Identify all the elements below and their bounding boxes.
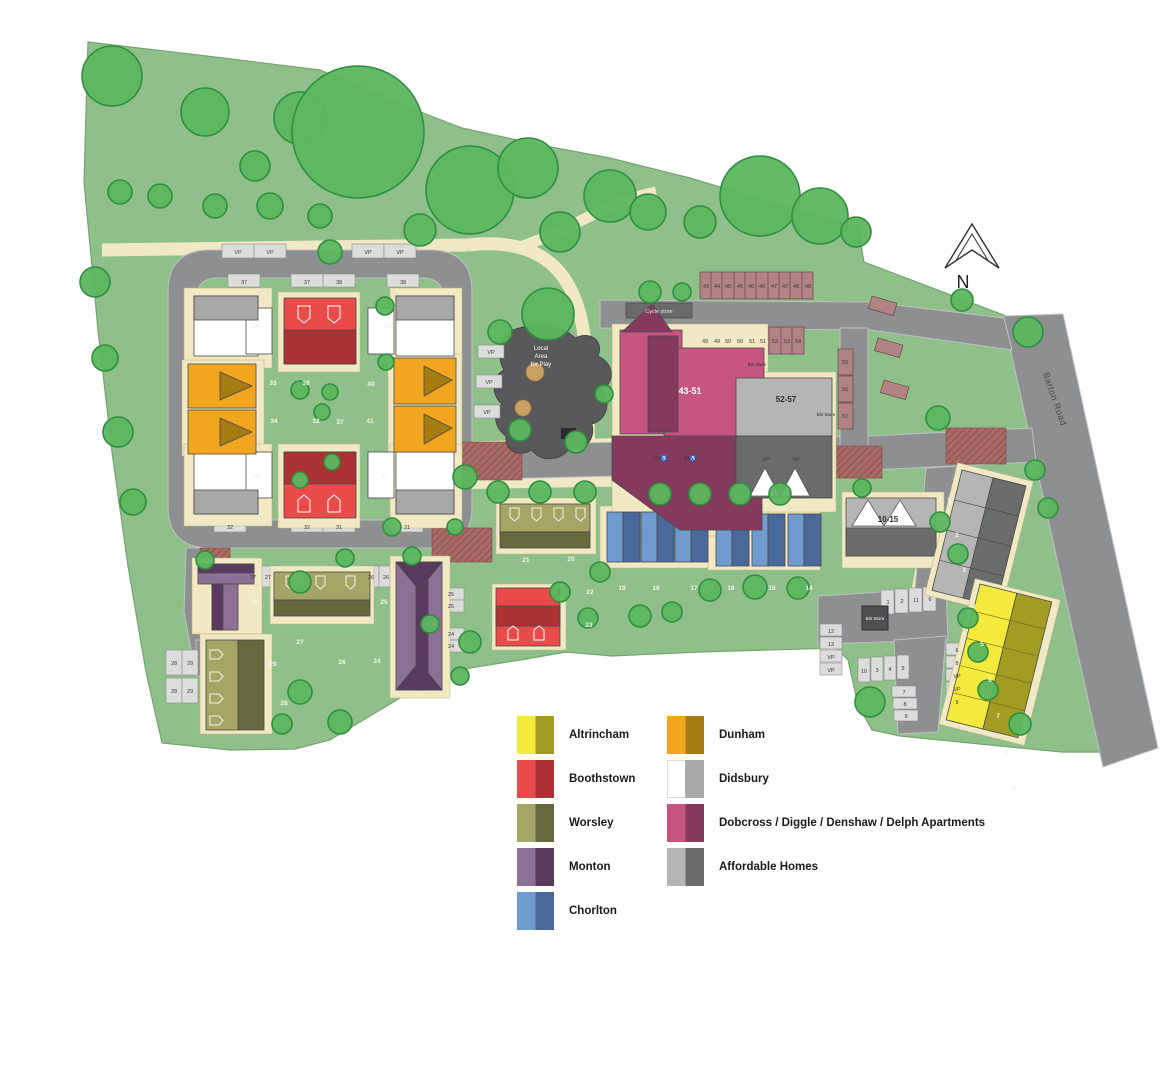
vp-label: VP	[827, 668, 835, 674]
tree-icon	[926, 406, 950, 430]
worsley-roof	[500, 532, 590, 548]
play-area-label: Area	[535, 354, 548, 360]
swatch-light	[667, 716, 686, 754]
parking-label: 57	[842, 414, 848, 420]
legend-label: Monton	[569, 861, 611, 873]
chorlton-roof	[804, 514, 821, 566]
plot-number: 21	[522, 557, 530, 564]
tree-icon	[328, 710, 352, 734]
building-chorlton	[607, 512, 623, 562]
altrincham-swatch-icon	[517, 716, 554, 754]
legend-item-altrincham: Altrincham	[517, 716, 629, 754]
plot-number: 1	[947, 497, 951, 504]
parking-label: 54	[795, 339, 801, 345]
plot-number: 9	[1012, 785, 1016, 792]
tree-icon	[720, 156, 800, 236]
tree-icon	[459, 631, 481, 653]
north-arrow-icon	[945, 224, 999, 268]
swatch-dark	[686, 760, 705, 798]
tree-icon	[743, 575, 767, 599]
tree-icon	[590, 562, 610, 582]
building-52-57	[736, 378, 832, 436]
tree-icon	[1038, 498, 1058, 518]
tree-icon	[729, 483, 751, 505]
tree-icon	[595, 385, 613, 403]
vp-label: VP	[762, 457, 770, 463]
tree-icon	[540, 212, 580, 252]
plot-number: 37	[336, 419, 344, 426]
tree-icon	[240, 151, 270, 181]
tree-icon	[488, 320, 512, 344]
parking-label: 24	[448, 632, 454, 638]
parking-label: 51	[760, 339, 766, 345]
parking-label: 5	[901, 666, 904, 672]
vp-label: VP	[953, 674, 961, 680]
tree-icon	[257, 193, 283, 219]
tree-icon	[318, 240, 342, 264]
boothstown-roof	[496, 606, 560, 626]
tree-icon	[203, 194, 227, 218]
plot-number: 16	[727, 585, 735, 592]
play-area-label: for Play	[531, 362, 551, 368]
plot-number: 36	[252, 323, 260, 330]
plot-number: 5	[980, 641, 984, 648]
affordable-swatch-icon	[667, 848, 704, 886]
parking-label: 46	[759, 284, 765, 290]
bin-store-label: Bin Store	[748, 362, 767, 367]
vp-label: VP	[364, 250, 372, 256]
parking-label: 27	[250, 575, 256, 581]
parking-label: 28	[171, 689, 177, 695]
vp-label: VP	[234, 250, 242, 256]
boothstown-roof	[284, 330, 356, 364]
tree-icon	[1025, 460, 1045, 480]
legend-label: Worsley	[569, 817, 614, 829]
tree-icon	[376, 297, 394, 315]
parking-label: 31	[336, 525, 342, 531]
didsbury-swatch-icon	[667, 760, 704, 798]
boothstown-swatch-icon	[517, 760, 554, 798]
worsley-roof	[238, 640, 264, 730]
tree-icon	[324, 454, 340, 470]
parking-label: 6	[955, 648, 958, 654]
plot-number: 7	[996, 713, 1000, 720]
tree-icon	[378, 354, 394, 370]
tree-icon	[769, 483, 791, 505]
swatch-light	[517, 760, 536, 798]
plot-number: 6	[988, 677, 992, 684]
plot-number: 24	[373, 658, 381, 665]
play-area-label: Local	[534, 346, 548, 352]
tree-icon	[853, 479, 871, 497]
accessible-bay-label: 44♿	[684, 455, 697, 462]
legend-label: Dunham	[719, 729, 765, 741]
legend-item-monton: Monton	[517, 848, 611, 886]
parking-label: 3	[875, 668, 878, 674]
vp-label: VP	[485, 380, 493, 386]
tree-icon	[272, 714, 292, 734]
vp-label: VP	[792, 457, 800, 463]
tree-icon	[1009, 713, 1031, 735]
tree-icon	[487, 481, 509, 503]
legend-label: Dobcross / Diggle / Denshaw / Delph Apar…	[719, 817, 985, 829]
building-chorlton	[788, 514, 804, 566]
plot-number: 4	[972, 604, 976, 611]
parking-label: 49	[702, 339, 708, 345]
bin-store-label: Bin Store	[817, 412, 836, 417]
vp-label: VP	[827, 655, 835, 661]
parking-label: 24	[448, 644, 454, 650]
tree-icon	[404, 214, 436, 246]
parking-label: 25	[448, 604, 454, 610]
tree-icon	[649, 483, 671, 505]
parking-label: 45	[725, 284, 731, 290]
tree-icon	[855, 687, 885, 717]
chorlton-swatch-icon	[517, 892, 554, 930]
swatch-light	[517, 804, 536, 842]
swatch-dark	[686, 804, 705, 842]
tree-icon	[689, 483, 711, 505]
parking-label: 26	[368, 575, 374, 581]
tree-icon	[120, 489, 146, 515]
bin-store-label: Bin Store	[866, 616, 885, 621]
building-10-15-label: 10-15	[878, 515, 899, 524]
tree-icon	[629, 605, 651, 627]
plot-number: 34	[270, 418, 278, 425]
tree-icon	[1013, 317, 1043, 347]
apartments-label: 43-51	[678, 386, 701, 396]
parking-label: 1	[886, 600, 889, 606]
tree-icon	[80, 267, 110, 297]
plot-number: 35	[252, 473, 260, 480]
parking-label: 2	[900, 599, 903, 605]
tree-icon	[792, 188, 848, 244]
tree-icon	[453, 465, 477, 489]
legend-item-chorlton: Chorlton	[517, 892, 617, 930]
worsley-swatch-icon	[517, 804, 554, 842]
parking-label: 25	[448, 592, 454, 598]
swatch-dark	[686, 716, 705, 754]
parking-label: 38	[336, 280, 342, 286]
dunham-swatch-icon	[667, 716, 704, 754]
didsbury-roof	[396, 490, 454, 514]
tree-icon	[565, 431, 587, 453]
junction-surface	[946, 428, 1006, 464]
tree-icon	[292, 472, 308, 488]
swatch-dark	[536, 716, 555, 754]
cycle-store-label: Cycle store	[645, 309, 673, 315]
parking-label: 10	[861, 669, 867, 675]
swatch-light	[517, 716, 536, 754]
tree-icon	[673, 283, 691, 301]
tree-icon	[584, 170, 636, 222]
parking-label: 9	[904, 714, 907, 720]
parking-label: 38	[400, 280, 406, 286]
vp-label: VP	[953, 687, 961, 693]
parking-label: 44	[714, 284, 720, 290]
tree-icon	[948, 544, 968, 564]
tree-icon	[574, 481, 596, 503]
plot-number: 3	[962, 567, 966, 574]
tree-icon	[148, 184, 172, 208]
tree-icon	[699, 579, 721, 601]
legend-label: Boothstown	[569, 773, 635, 785]
plot-number: 15	[768, 585, 776, 592]
tree-icon	[108, 180, 132, 204]
tree-icon	[968, 642, 988, 662]
tree-icon	[447, 519, 463, 535]
parking-label: 46	[748, 284, 754, 290]
plot-number: 29	[269, 661, 277, 668]
parking-label: 13	[828, 642, 834, 648]
tree-icon	[958, 608, 978, 628]
building-chorlton	[641, 512, 657, 562]
tree-icon	[383, 518, 401, 536]
plot-number: 25	[380, 599, 388, 606]
plot-number: 2	[955, 532, 959, 539]
tree-icon	[289, 571, 311, 593]
parking-label: 37	[304, 280, 310, 286]
parking-label: 32	[227, 525, 233, 531]
vp-label: VP	[487, 350, 495, 356]
plot-number: 27	[296, 639, 304, 646]
legend-label: Altrincham	[569, 729, 629, 741]
legend-item-worsley: Worsley	[517, 804, 614, 842]
vp-label: VP	[396, 250, 404, 256]
swatch-dark	[536, 760, 555, 798]
tree-icon	[196, 551, 214, 569]
tree-icon	[181, 88, 229, 136]
parking-label: 45	[737, 284, 743, 290]
legend-label: Affordable Homes	[719, 861, 818, 873]
parking-label: 6	[928, 597, 931, 603]
swatch-dark	[536, 848, 555, 886]
parking-label: 26	[383, 575, 389, 581]
apartments-swatch-icon	[667, 804, 704, 842]
tree-icon	[498, 138, 558, 198]
legend-label: Didsbury	[719, 773, 769, 785]
plot-number: 30	[250, 599, 258, 606]
tree-icon	[92, 345, 118, 371]
plot-number: 39	[384, 323, 392, 330]
tree-icon	[288, 680, 312, 704]
didsbury-roof	[194, 296, 258, 320]
parking-label: 56	[842, 387, 848, 393]
swatch-dark	[536, 892, 555, 930]
tree-icon	[630, 194, 666, 230]
tree-icon	[308, 204, 332, 228]
parking-label: 28	[171, 661, 177, 667]
parking-label: 29	[187, 661, 193, 667]
legend-item-affordable: Affordable Homes	[667, 848, 818, 886]
tree-icon	[509, 419, 531, 441]
plot-number: 28	[280, 700, 288, 707]
parking-label: 50	[737, 339, 743, 345]
parking-label: 29	[187, 689, 193, 695]
parking-label: 43	[703, 284, 709, 290]
apartments-roof	[648, 336, 678, 432]
plot-number: 42	[381, 473, 389, 480]
didsbury-roof	[396, 296, 454, 320]
tree-icon	[451, 667, 469, 685]
parking-label: 49	[714, 339, 720, 345]
parking-label: 12	[828, 629, 834, 635]
monton-swatch-icon	[517, 848, 554, 886]
parking-label: 51	[749, 339, 755, 345]
chorlton-roof	[768, 514, 785, 566]
parking-label: 4	[888, 667, 891, 673]
site-plan-page: Local Area for Play	[0, 0, 1162, 1080]
parking-label: 37	[241, 280, 247, 286]
tree-icon	[82, 46, 142, 106]
vp-label: VP	[266, 250, 274, 256]
legend-item-apartments: Dobcross / Diggle / Denshaw / Delph Apar…	[667, 804, 985, 842]
parking-label: 55	[842, 360, 848, 366]
tree-icon	[103, 417, 133, 447]
plot-number: 33	[269, 380, 277, 387]
north-label: N	[957, 272, 970, 292]
tree-icon	[522, 288, 574, 340]
worsley-roof	[274, 600, 370, 616]
parking-label: 7	[902, 690, 905, 696]
legend-item-didsbury: Didsbury	[667, 760, 769, 798]
parking-label: 48	[805, 284, 811, 290]
tree-icon	[322, 384, 338, 400]
parking-label: 50	[725, 339, 731, 345]
tree-icon	[930, 512, 950, 532]
plot-number: 14	[805, 585, 813, 592]
plot-number: 26	[338, 659, 346, 666]
parking-label: 47	[771, 284, 777, 290]
building-52-57-label: 52-57	[776, 395, 797, 404]
plot-number: 40	[367, 381, 375, 388]
north-arrow: N	[945, 224, 999, 292]
plot-number: 18	[652, 585, 660, 592]
parking-label: 47	[782, 284, 788, 290]
plot-number: 19	[618, 585, 626, 592]
plot-number: 22	[586, 589, 594, 596]
building-10-15-roof	[846, 528, 936, 556]
swatch-light	[667, 804, 686, 842]
plot-number: 41	[366, 418, 374, 425]
vp-label: VP	[483, 410, 491, 416]
swatch-light	[667, 760, 686, 798]
plot-number: 8	[1004, 749, 1008, 756]
monton-roof	[212, 584, 223, 630]
tree-icon	[529, 481, 551, 503]
swatch-light	[517, 848, 536, 886]
plot-number: 20	[567, 556, 575, 563]
tree-icon	[292, 66, 424, 198]
parking-label: 9	[955, 700, 958, 706]
swatch-dark	[686, 848, 705, 886]
chorlton-roof	[623, 512, 640, 562]
tree-icon	[421, 615, 439, 633]
play-mound	[515, 400, 531, 416]
accessible-bay-label: 43♿	[655, 455, 668, 462]
tree-icon	[639, 281, 661, 303]
parking-label: 27	[265, 575, 271, 581]
tree-icon	[662, 602, 682, 622]
parking-label: 8	[955, 661, 958, 667]
plot-number: 23	[585, 622, 593, 629]
swatch-light	[517, 892, 536, 930]
swatch-light	[667, 848, 686, 886]
parking-label: 32	[304, 525, 310, 531]
parking-label: 31	[404, 525, 410, 531]
plot-number: 38	[302, 380, 310, 387]
tree-icon	[550, 582, 570, 602]
tree-icon	[684, 206, 716, 238]
swatch-dark	[536, 804, 555, 842]
tree-icon	[336, 549, 354, 567]
parking-label: 48	[793, 284, 799, 290]
parking-label: 8	[903, 702, 906, 708]
legend-item-boothstown: Boothstown	[517, 760, 635, 798]
legend-label: Chorlton	[569, 905, 617, 917]
plot-number: 17	[690, 585, 698, 592]
parking-label: 11	[913, 598, 919, 604]
legend-item-dunham: Dunham	[667, 716, 765, 754]
plot-number: 32	[312, 418, 320, 425]
tree-icon	[841, 217, 871, 247]
tree-icon	[951, 289, 973, 311]
parking-label: 52	[772, 339, 778, 345]
parking-label: 53	[784, 339, 790, 345]
didsbury-roof	[194, 490, 258, 514]
tree-icon	[403, 547, 421, 565]
